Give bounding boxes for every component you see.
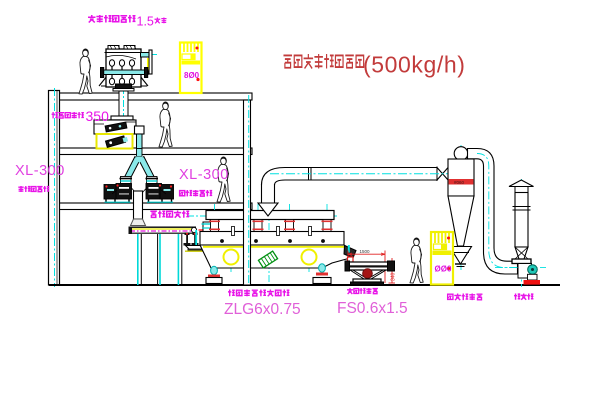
svg-text:1.5: 1.5 — [137, 15, 154, 29]
svg-text:XL-300: XL-300 — [179, 167, 229, 183]
svg-text:350: 350 — [86, 108, 110, 124]
svg-text:FS0.6x1.5: FS0.6x1.5 — [337, 300, 408, 317]
svg-text:XL-300: XL-300 — [15, 163, 65, 179]
svg-text:ØØ0: ØØ0 — [435, 265, 452, 274]
svg-text:8Ø0: 8Ø0 — [184, 71, 200, 80]
svg-text:ZLG6x0.75: ZLG6x0.75 — [224, 301, 301, 318]
svg-text:#060: #060 — [454, 180, 465, 185]
svg-text:(500kg/h): (500kg/h) — [363, 52, 466, 78]
svg-text:340: 340 — [391, 272, 397, 281]
svg-text:1500: 1500 — [360, 249, 371, 254]
